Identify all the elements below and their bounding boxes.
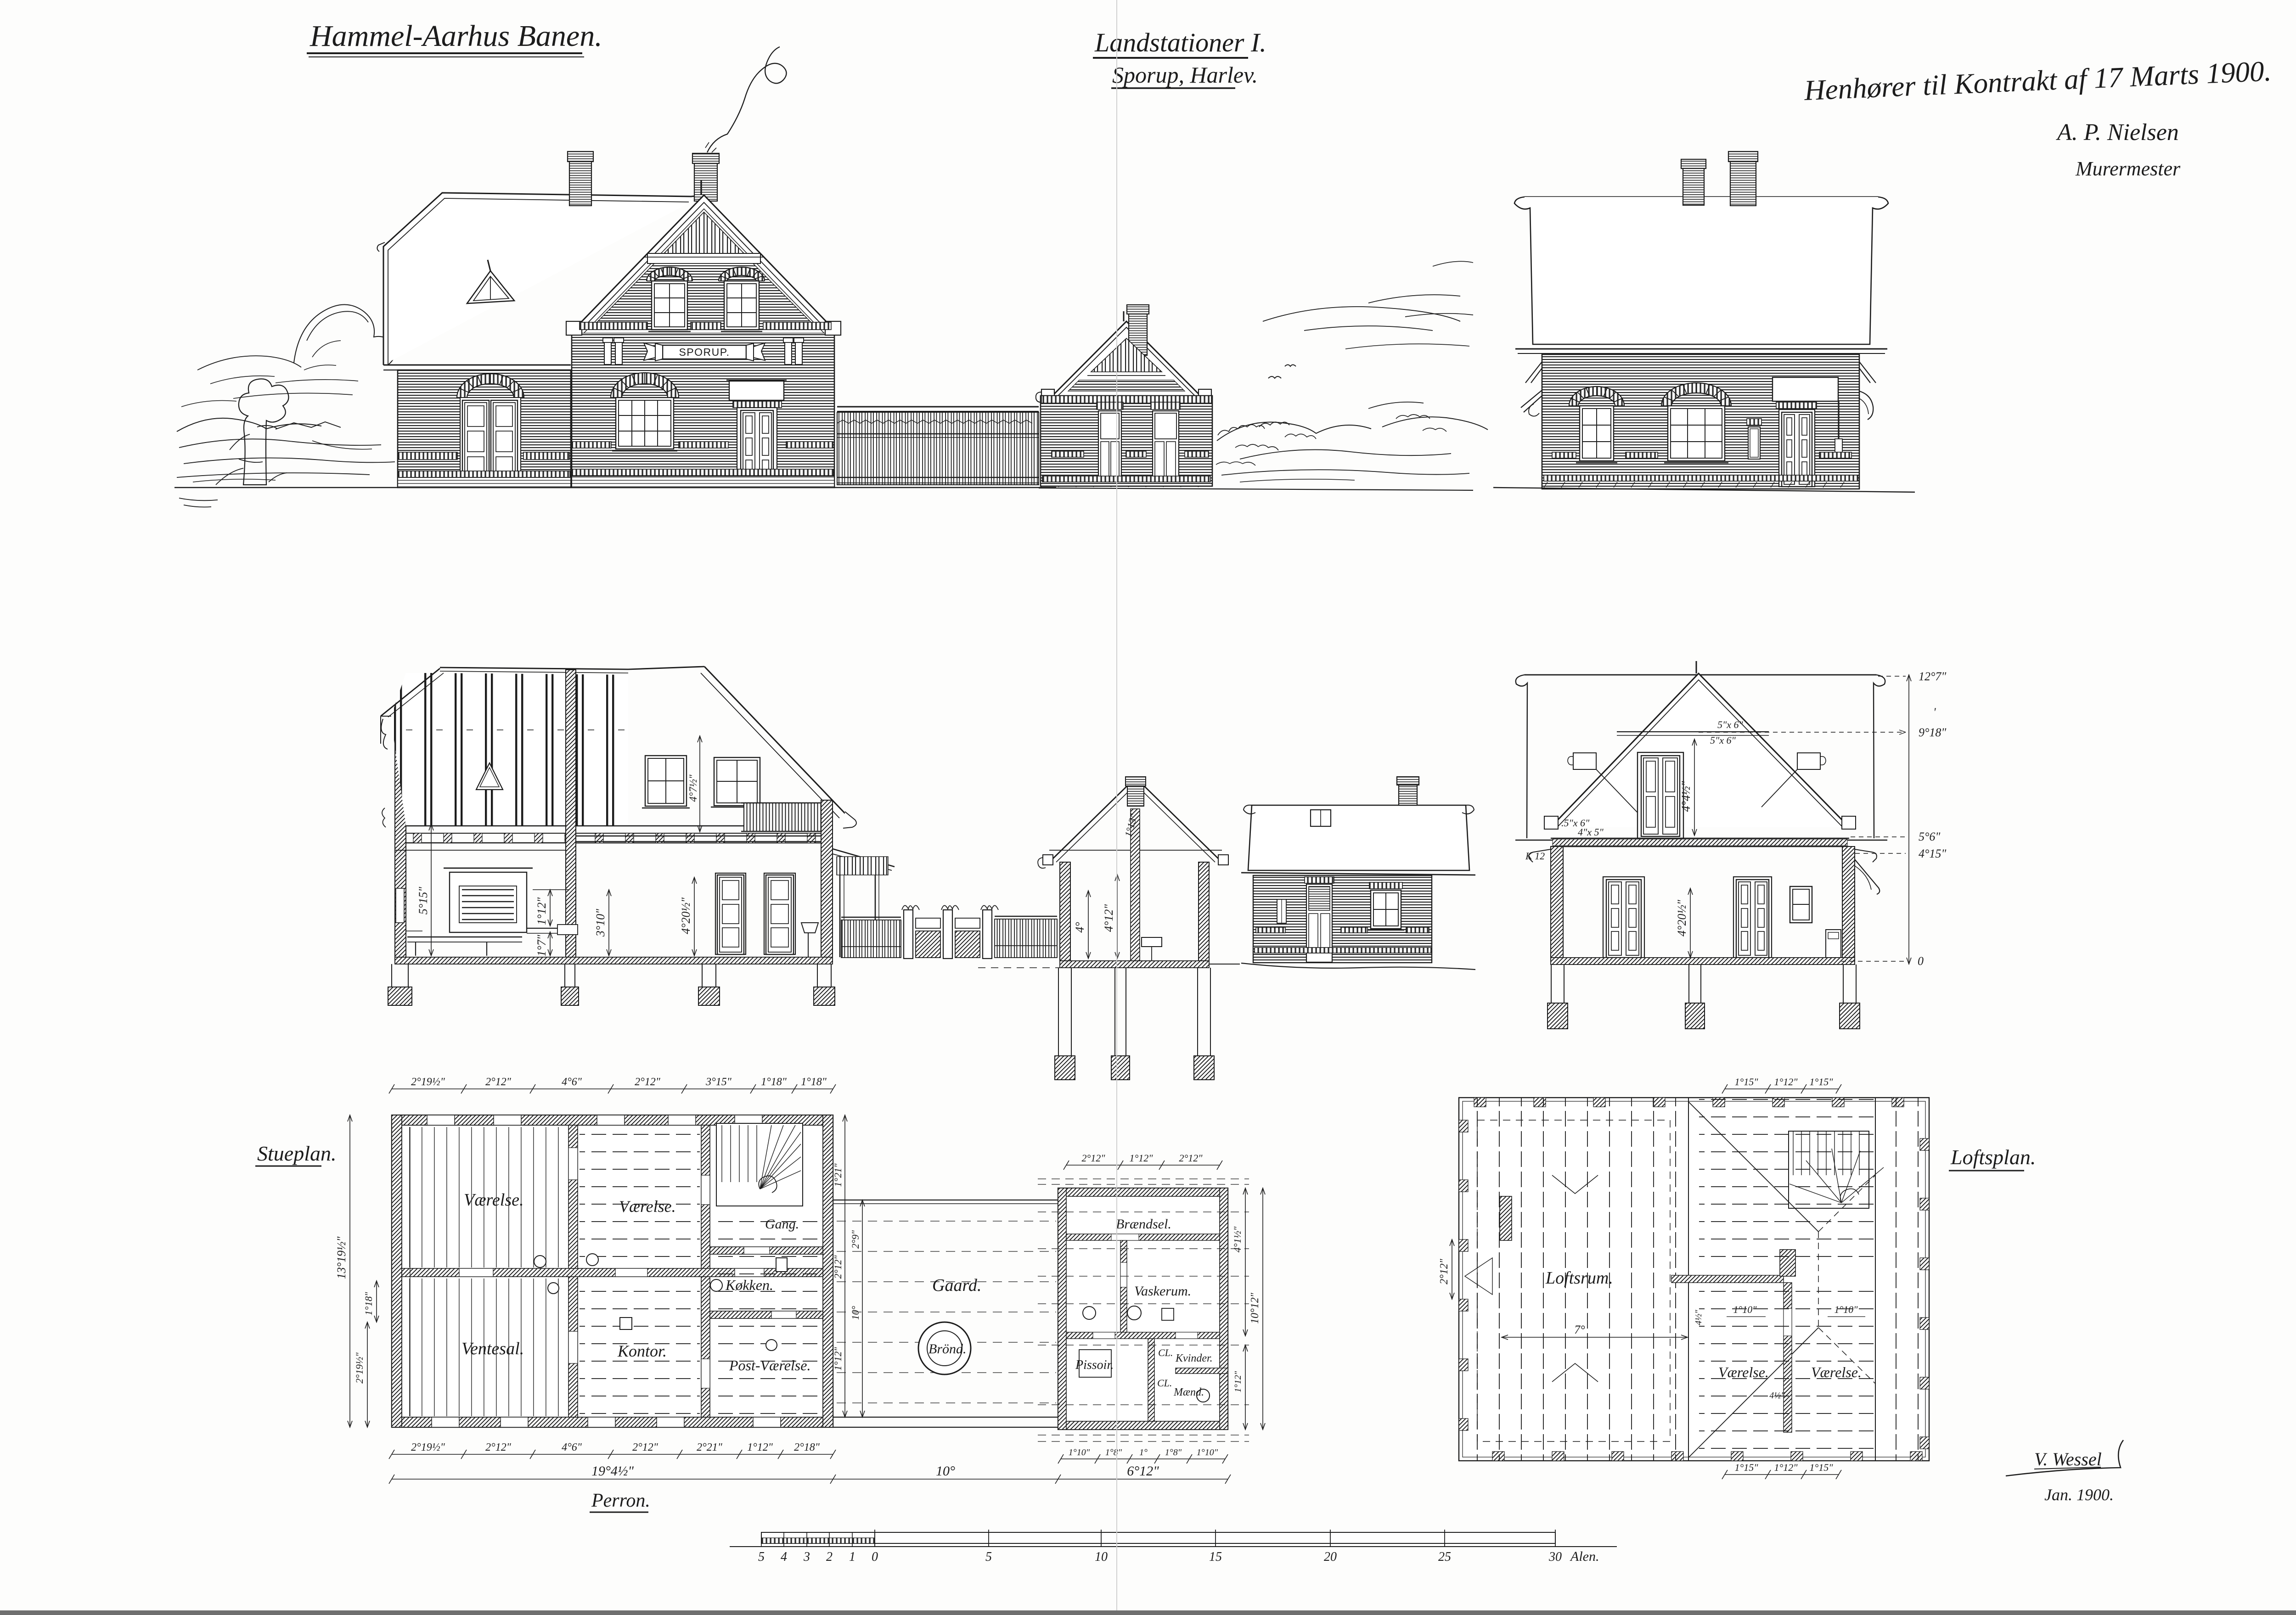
svg-text:4°1½": 4°1½" xyxy=(1232,1226,1243,1252)
svg-text:Kontor.: Kontor. xyxy=(617,1342,667,1360)
svg-text:12°7": 12°7" xyxy=(1919,670,1946,683)
svg-text:Loftsplan.: Loftsplan. xyxy=(1950,1145,2036,1169)
svg-text:Værelse.: Værelse. xyxy=(1718,1364,1769,1380)
svg-text:4°6": 4°6" xyxy=(562,1076,582,1088)
svg-text:4°15": 4°15" xyxy=(1919,847,1946,860)
svg-text:1°10": 1°10" xyxy=(1069,1447,1090,1458)
svg-text:2°21": 2°21" xyxy=(697,1441,723,1453)
svg-text:0: 0 xyxy=(872,1550,878,1564)
svg-text:1°18": 1°18" xyxy=(363,1292,374,1316)
svg-text:1°10": 1°10" xyxy=(1197,1447,1218,1458)
svg-text:Brændsel.: Brændsel. xyxy=(1116,1217,1171,1232)
svg-text:4: 4 xyxy=(781,1550,787,1564)
svg-text:Værelse.: Værelse. xyxy=(619,1197,676,1216)
svg-text:1°12": 1°12" xyxy=(747,1441,773,1453)
svg-text:4°7½": 4°7½" xyxy=(687,774,699,802)
svg-text:2°9": 2°9" xyxy=(850,1230,861,1249)
svg-text:1°15": 1°15" xyxy=(1734,1076,1758,1088)
svg-text:1°15": 1°15" xyxy=(1809,1462,1833,1473)
svg-text:Loftsrum.: Loftsrum. xyxy=(1545,1268,1613,1288)
svg-text:4°20½": 4°20½" xyxy=(679,897,692,934)
svg-text:4°20½": 4°20½" xyxy=(1675,900,1688,936)
svg-text:1°12": 1°12" xyxy=(1774,1076,1798,1088)
svg-text:10: 10 xyxy=(1095,1550,1108,1564)
svg-text:Kvinder.: Kvinder. xyxy=(1175,1352,1213,1364)
svg-text:Ventesal.: Ventesal. xyxy=(461,1339,524,1358)
svg-text:6°12": 6°12" xyxy=(1127,1464,1159,1479)
svg-text:20: 20 xyxy=(1324,1550,1337,1564)
svg-text:4"x 5": 4"x 5" xyxy=(1578,826,1604,838)
svg-text:9°18": 9°18" xyxy=(1919,726,1946,739)
svg-text:2°12": 2°12" xyxy=(1081,1152,1105,1164)
svg-text:2°12": 2°12" xyxy=(485,1076,512,1088)
svg-text:Brönd.: Brönd. xyxy=(929,1341,967,1357)
svg-text:3: 3 xyxy=(803,1550,810,1564)
svg-text:4½": 4½" xyxy=(1769,1391,1785,1401)
svg-text:Sporup, Harlev.: Sporup, Harlev. xyxy=(1112,62,1258,88)
svg-text:A. P. Nielsen: A. P. Nielsen xyxy=(2056,119,2179,146)
svg-text:19°4½": 19°4½" xyxy=(591,1464,634,1479)
svg-text:Mænd.: Mænd. xyxy=(1173,1386,1204,1398)
svg-text:4°6": 4°6" xyxy=(562,1441,582,1453)
svg-text:1°15": 1°15" xyxy=(1809,1076,1833,1088)
svg-text:3°10": 3°10" xyxy=(594,909,607,937)
svg-text:CL.: CL. xyxy=(1158,1347,1173,1358)
svg-text:5°6": 5°6" xyxy=(1919,830,1940,843)
svg-text:1°8": 1°8" xyxy=(1105,1447,1122,1458)
svg-text:Perron.: Perron. xyxy=(591,1490,650,1511)
svg-text:1°10": 1°10" xyxy=(1834,1304,1858,1315)
svg-text:1°12": 1°12" xyxy=(1129,1152,1153,1164)
svg-text:1°12": 1°12" xyxy=(1233,1371,1243,1392)
svg-text:10°: 10° xyxy=(850,1306,861,1320)
svg-text:1°18": 1°18" xyxy=(761,1076,787,1088)
svg-text:2°12": 2°12" xyxy=(485,1441,512,1453)
svg-text:1°12": 1°12" xyxy=(1774,1462,1798,1473)
svg-text:V. Wessel: V. Wessel xyxy=(2034,1449,2102,1469)
svg-text:1°12": 1°12" xyxy=(832,1347,844,1371)
svg-text:4°12": 4°12" xyxy=(1102,904,1115,932)
svg-text:3°15": 3°15" xyxy=(705,1076,732,1088)
svg-text:5"x 6": 5"x 6" xyxy=(1710,735,1736,746)
svg-text:1°8": 1°8" xyxy=(1165,1447,1182,1458)
svg-text:1°18": 1°18" xyxy=(801,1076,827,1088)
svg-text:5"x 6": 5"x 6" xyxy=(1717,719,1744,730)
svg-text:7°: 7° xyxy=(1574,1323,1585,1336)
svg-text:Murermester: Murermester xyxy=(2075,157,2181,180)
svg-text:2°12": 2°12" xyxy=(1179,1152,1203,1164)
svg-text:10°: 10° xyxy=(936,1464,955,1479)
svg-text:5: 5 xyxy=(758,1550,765,1564)
svg-text:1°21": 1°21" xyxy=(832,1163,844,1187)
svg-text:4°4½": 4°4½" xyxy=(1679,781,1693,812)
svg-text:4½": 4½" xyxy=(1694,1310,1704,1325)
svg-text:2°12": 2°12" xyxy=(1438,1258,1450,1284)
svg-text:Landstationer I.: Landstationer I. xyxy=(1094,28,1266,57)
svg-text:1°: 1° xyxy=(1139,1447,1148,1458)
svg-text:2°12": 2°12" xyxy=(632,1441,658,1453)
svg-text:1°12": 1°12" xyxy=(535,897,548,925)
svg-text:2°19½": 2°19½" xyxy=(411,1441,445,1453)
svg-text:15: 15 xyxy=(1209,1550,1222,1564)
svg-text:2°19½": 2°19½" xyxy=(354,1352,365,1383)
svg-text:1°10": 1°10" xyxy=(1733,1304,1757,1315)
svg-text:Pissoir.: Pissoir. xyxy=(1075,1358,1114,1372)
svg-text:2°12": 2°12" xyxy=(635,1076,661,1088)
svg-text:Gang.: Gang. xyxy=(765,1217,799,1232)
svg-text:CL.: CL. xyxy=(1157,1377,1172,1389)
svg-text:5: 5 xyxy=(985,1550,992,1564)
svg-text:SPORUP.: SPORUP. xyxy=(679,346,730,358)
svg-text:Post-Værelse.: Post-Værelse. xyxy=(729,1357,810,1374)
svg-text:2: 2 xyxy=(826,1550,833,1564)
svg-text:Alen.: Alen. xyxy=(1570,1549,1599,1564)
svg-text:10°12": 10°12" xyxy=(1249,1292,1261,1324)
svg-text:Hammel-Aarhus Banen.: Hammel-Aarhus Banen. xyxy=(310,19,602,53)
svg-text:2°19½": 2°19½" xyxy=(411,1076,445,1088)
svg-text:30: 30 xyxy=(1548,1550,1562,1564)
svg-text:1°7": 1°7" xyxy=(535,935,548,956)
svg-text:2°18": 2°18" xyxy=(794,1441,820,1453)
svg-text:1°15": 1°15" xyxy=(1734,1462,1758,1473)
svg-text:0: 0 xyxy=(1918,954,1924,968)
svg-text:Gaard.: Gaard. xyxy=(932,1276,981,1295)
svg-text:1: 1 xyxy=(849,1550,855,1564)
svg-text:Værelse.: Værelse. xyxy=(464,1190,524,1210)
svg-text:Værelse.: Værelse. xyxy=(1811,1364,1862,1380)
svg-text:Vaskerum.: Vaskerum. xyxy=(1134,1284,1191,1299)
svg-text:4°: 4° xyxy=(1073,922,1086,932)
svg-text:': ' xyxy=(1933,706,1936,719)
svg-text:Stueplan.: Stueplan. xyxy=(257,1142,336,1165)
svg-text:Jan. 1900.: Jan. 1900. xyxy=(2044,1486,2114,1504)
svg-text:Køkken.: Køkken. xyxy=(725,1277,773,1293)
svg-text:2°12": 2°12" xyxy=(832,1255,844,1279)
svg-text:13°19½": 13°19½" xyxy=(335,1237,348,1279)
svg-text:25: 25 xyxy=(1438,1550,1451,1564)
svg-text:5°15": 5°15" xyxy=(416,887,430,914)
